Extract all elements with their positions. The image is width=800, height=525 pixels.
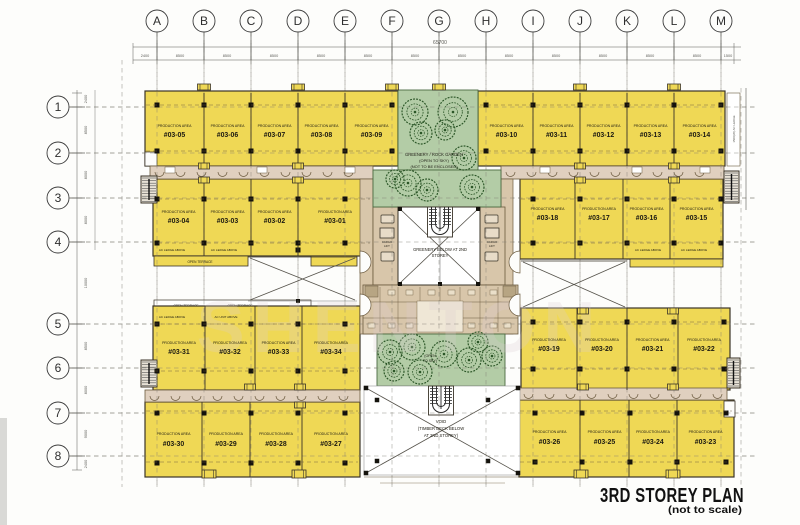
svg-text:PRODUCTION AREA: PRODUCTION AREA [314, 341, 349, 345]
svg-text:8500: 8500 [364, 54, 372, 58]
svg-text:#03-13: #03-13 [640, 132, 662, 139]
svg-text:L: L [671, 14, 678, 28]
svg-text:VOID: VOID [436, 419, 447, 424]
svg-text:#03-17: #03-17 [588, 215, 610, 222]
svg-text:#03-19: #03-19 [538, 346, 560, 353]
svg-text:#03-15: #03-15 [686, 215, 708, 222]
svg-text:PRODUCTION AREA: PRODUCTION AREA [582, 207, 617, 211]
svg-text:#03-20: #03-20 [591, 346, 613, 353]
svg-text:2400: 2400 [84, 460, 88, 468]
svg-text:#03-22: #03-22 [693, 346, 715, 353]
svg-text:GREENERY BELOW AT 2ND: GREENERY BELOW AT 2ND [413, 247, 467, 252]
svg-text:#03-05: #03-05 [164, 132, 186, 139]
svg-text:8500: 8500 [552, 54, 560, 58]
svg-text:3: 3 [55, 191, 62, 205]
svg-text:AC LEDGE ABOVE: AC LEDGE ABOVE [681, 248, 707, 252]
svg-text:PRODUCTION AREA: PRODUCTION AREA [532, 338, 567, 342]
svg-text:#03-34: #03-34 [320, 349, 342, 356]
svg-text:8500: 8500 [458, 54, 466, 58]
svg-text:#03-25: #03-25 [594, 439, 616, 446]
svg-text:8500: 8500 [317, 54, 325, 58]
svg-text:PRODUCTION AREA: PRODUCTION AREA [531, 207, 566, 211]
svg-text:PRODUCTION AREA: PRODUCTION AREA [588, 430, 623, 434]
svg-text:PRODUCTION AREA: PRODUCTION AREA [636, 430, 671, 434]
svg-text:(TIMBER DECK BELOW: (TIMBER DECK BELOW [418, 426, 464, 431]
svg-text:2400: 2400 [141, 54, 149, 58]
svg-text:8500: 8500 [646, 54, 654, 58]
svg-text:8500: 8500 [505, 54, 513, 58]
svg-text:#03-26: #03-26 [539, 439, 561, 446]
svg-text:#03-21: #03-21 [642, 346, 664, 353]
svg-text:PRODUCTION AREA: PRODUCTION AREA [157, 432, 192, 436]
svg-text:#03-06: #03-06 [217, 132, 239, 139]
svg-text:8500: 8500 [599, 54, 607, 58]
svg-text:#03-11: #03-11 [546, 132, 567, 139]
svg-text:#03-28: #03-28 [265, 441, 287, 448]
svg-text:1500(W) AC LEDGE: 1500(W) AC LEDGE [732, 115, 736, 142]
svg-text:(NOT TO BE ENCLOSED): (NOT TO BE ENCLOSED) [410, 164, 458, 169]
svg-text:#03-09: #03-09 [361, 132, 383, 139]
svg-text:PRODUCTION AREA: PRODUCTION AREA [258, 210, 293, 214]
svg-text:PRODUCTION AREA: PRODUCTION AREA [305, 124, 340, 128]
svg-text:1500: 1500 [724, 54, 732, 58]
svg-text:F: F [388, 14, 395, 28]
svg-text:#03-12: #03-12 [593, 132, 615, 139]
svg-text:8500: 8500 [84, 342, 88, 350]
svg-text:PRODUCTION AREA: PRODUCTION AREA [162, 210, 197, 214]
svg-text:PRODUCTION AREA: PRODUCTION AREA [314, 432, 349, 436]
svg-text:8000: 8000 [84, 171, 88, 179]
svg-text:#03-23: #03-23 [695, 439, 717, 446]
svg-text:8500: 8500 [411, 54, 419, 58]
svg-text:7: 7 [55, 406, 62, 420]
svg-text:PRODUCTION AREA: PRODUCTION AREA [211, 210, 246, 214]
svg-text:PRODUCTION AREA: PRODUCTION AREA [540, 124, 575, 128]
svg-text:PRODUCTION AREA: PRODUCTION AREA [262, 341, 297, 345]
svg-text:#03-08: #03-08 [311, 132, 333, 139]
svg-text:AC LEDGE ABOVE: AC LEDGE ABOVE [159, 248, 185, 252]
svg-text:8500: 8500 [693, 54, 701, 58]
svg-text:E: E [341, 14, 349, 28]
svg-text:H: H [482, 14, 491, 28]
svg-text:STOREY: STOREY [432, 253, 449, 258]
svg-text:8500: 8500 [176, 54, 184, 58]
svg-text:PRODUCTION AREA: PRODUCTION AREA [211, 124, 246, 128]
svg-text:AC LEDGE ABOVE: AC LEDGE ABOVE [159, 315, 185, 319]
svg-text:#03-30: #03-30 [163, 441, 185, 448]
svg-text:#03-24: #03-24 [642, 439, 664, 446]
svg-text:#03-02: #03-02 [264, 218, 286, 225]
svg-text:PRODUCTION AREA: PRODUCTION AREA [213, 341, 248, 345]
svg-text:D: D [294, 14, 303, 28]
svg-text:(not to scale): (not to scale) [668, 504, 742, 516]
svg-text:#03-07: #03-07 [264, 132, 286, 139]
svg-text:8500: 8500 [84, 126, 88, 134]
svg-text:2: 2 [55, 146, 62, 160]
svg-text:65700: 65700 [433, 40, 447, 46]
svg-text:1: 1 [55, 100, 62, 114]
svg-text:#03-27: #03-27 [320, 441, 342, 448]
svg-text:LIFT: LIFT [489, 244, 495, 248]
svg-text:4: 4 [55, 235, 62, 249]
svg-text:K: K [623, 14, 631, 28]
svg-text:I: I [531, 14, 534, 28]
svg-text:C: C [247, 14, 256, 28]
svg-text:9000: 9000 [84, 430, 88, 438]
svg-text:PRODUCTION AREA: PRODUCTION AREA [209, 432, 244, 436]
svg-text:PRODUCTION AREA: PRODUCTION AREA [634, 124, 669, 128]
svg-text:OPEN TERRACE: OPEN TERRACE [187, 260, 212, 264]
svg-text:AC UNIT ABOVE: AC UNIT ABOVE [215, 315, 238, 319]
svg-text:8500: 8500 [270, 54, 278, 58]
svg-text:PRODUCTION AREA: PRODUCTION AREA [490, 124, 525, 128]
svg-text:GREENERY / ROCK GARDEN: GREENERY / ROCK GARDEN [405, 152, 463, 157]
svg-text:PRODUCTION AREA: PRODUCTION AREA [587, 124, 622, 128]
svg-text:8000: 8000 [84, 386, 88, 394]
svg-text:#03-31: #03-31 [168, 349, 190, 356]
svg-text:SHENTON: SHENTON [197, 288, 604, 368]
svg-text:PRODUCTION AREA: PRODUCTION AREA [630, 207, 665, 211]
svg-text:J: J [577, 14, 583, 28]
svg-text:AC LEDGE ABOVE: AC LEDGE ABOVE [211, 248, 237, 252]
svg-text:#03-32: #03-32 [219, 349, 241, 356]
svg-text:PRODUCTION AREA: PRODUCTION AREA [680, 207, 715, 211]
svg-text:2400: 2400 [84, 95, 88, 103]
svg-text:10000: 10000 [84, 278, 88, 289]
svg-text:PRODUCTION AREA: PRODUCTION AREA [355, 124, 390, 128]
svg-text:#03-10: #03-10 [496, 132, 518, 139]
svg-text:AC LEDGE ABOVE: AC LEDGE ABOVE [635, 248, 661, 252]
svg-text:8000: 8000 [84, 216, 88, 224]
svg-text:#03-04: #03-04 [168, 218, 190, 225]
svg-text:8: 8 [55, 449, 62, 463]
svg-text:PRODUCTION AREA: PRODUCTION AREA [683, 124, 718, 128]
svg-text:#03-33: #03-33 [268, 349, 290, 356]
svg-text:#03-14: #03-14 [689, 132, 711, 139]
svg-text:PRODUCTION AREA: PRODUCTION AREA [585, 338, 620, 342]
svg-text:PRODUCTION AREA: PRODUCTION AREA [158, 124, 193, 128]
svg-text:#03-18: #03-18 [537, 215, 559, 222]
svg-text:PRODUCTION AREA: PRODUCTION AREA [636, 338, 671, 342]
svg-text:#03-16: #03-16 [636, 215, 658, 222]
svg-text:6: 6 [55, 361, 62, 375]
svg-text:PRODUCTION AREA: PRODUCTION AREA [258, 124, 293, 128]
svg-text:#03-01: #03-01 [324, 218, 346, 225]
svg-text:M: M [716, 14, 726, 28]
svg-text:A: A [153, 14, 161, 28]
svg-text:B: B [200, 14, 208, 28]
svg-text:#03-29: #03-29 [215, 441, 237, 448]
svg-text:PRODUCTION AREA: PRODUCTION AREA [689, 430, 724, 434]
svg-text:(OPEN TO SKY): (OPEN TO SKY) [419, 158, 449, 163]
svg-text:8500: 8500 [223, 54, 231, 58]
svg-text:PRODUCTION AREA: PRODUCTION AREA [162, 341, 197, 345]
svg-text:PRODUCTION AREA: PRODUCTION AREA [259, 432, 294, 436]
svg-text:#03-03: #03-03 [217, 218, 239, 225]
svg-text:PRODUCTION AREA: PRODUCTION AREA [318, 210, 353, 214]
svg-text:G: G [434, 14, 443, 28]
svg-text:PRODUCTION AREA: PRODUCTION AREA [533, 430, 568, 434]
svg-text:PRODUCTION AREA: PRODUCTION AREA [687, 338, 722, 342]
svg-text:AT 2ND STOREY): AT 2ND STOREY) [424, 433, 459, 438]
svg-text:5: 5 [55, 317, 62, 331]
svg-text:LIFT: LIFT [384, 244, 390, 248]
